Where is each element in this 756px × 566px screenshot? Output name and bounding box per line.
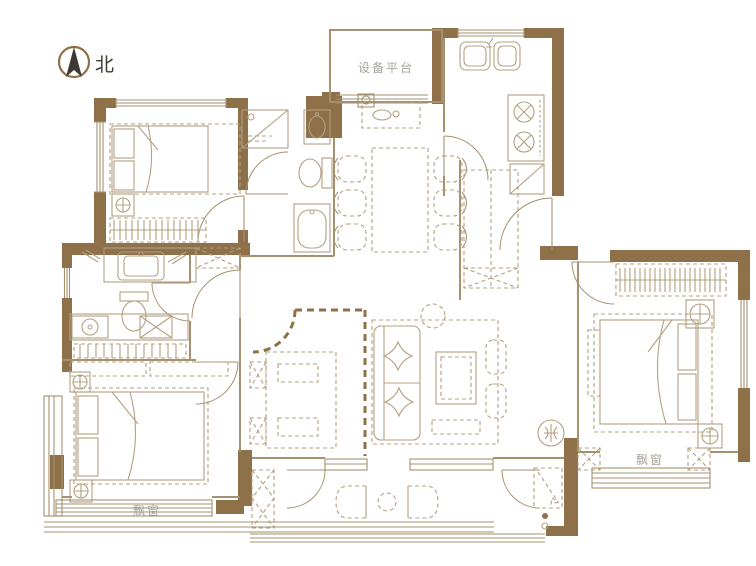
bed-north-icon xyxy=(112,126,208,192)
towel-radiator-icon xyxy=(74,344,186,358)
drain-dot-icon xyxy=(542,513,548,519)
room-flex xyxy=(250,310,365,456)
vanity-sink-icon xyxy=(294,204,330,252)
toilet-second-icon xyxy=(120,292,148,331)
room-bedroom-southwest xyxy=(70,362,228,502)
flex-side-unit-top-icon xyxy=(250,362,266,388)
bedside-table-master-icon xyxy=(698,424,722,448)
door-entry xyxy=(500,198,552,250)
gas-stove-icon xyxy=(508,95,544,161)
flex-cushion xyxy=(278,418,318,436)
wardrobe-north-icon xyxy=(110,218,206,242)
balcony-table-icon xyxy=(378,493,396,511)
balcony-sliding-window xyxy=(325,459,493,470)
door-bath-second xyxy=(152,283,190,321)
balcony-storage-left-icon xyxy=(252,470,274,528)
dining-chair-icon xyxy=(338,156,366,182)
door-bedroom-north xyxy=(198,196,244,242)
dining-chair-icon xyxy=(434,156,462,182)
dining-chairs xyxy=(334,156,467,250)
bay-window-southeast: 飘窗 xyxy=(578,448,710,488)
room-bath-second xyxy=(70,248,196,358)
doors xyxy=(152,136,614,508)
dining-chair-icon xyxy=(338,190,366,216)
bedside-lamp-sw-bottom-icon xyxy=(70,480,92,502)
sofa-pillow-icon xyxy=(384,342,412,370)
dining-chair-icon xyxy=(434,190,462,216)
window-kitchen-top xyxy=(458,28,524,38)
wardrobe-master-icon xyxy=(616,264,726,296)
room-dining xyxy=(334,102,467,252)
shower-icon xyxy=(242,110,288,148)
window-bath-second-left xyxy=(62,268,72,298)
room-master-bedroom xyxy=(588,264,726,448)
door-bath-main xyxy=(246,152,288,194)
bedside-lamp-sw-top-icon xyxy=(70,372,90,392)
living-rug-outline xyxy=(372,320,498,444)
toilet-main-icon xyxy=(299,158,332,188)
laundry-counter-icon xyxy=(70,314,188,340)
bedside-lamp-north-icon xyxy=(112,194,134,216)
window-bedroom-north-top xyxy=(116,98,226,108)
door-balcony-left xyxy=(287,470,325,508)
sofa-pillow-icon xyxy=(385,388,413,416)
flex-partition-outline xyxy=(295,310,365,456)
double-sink-icon xyxy=(460,38,520,70)
floor-plan-page: 北 xyxy=(0,0,756,566)
flex-cushion xyxy=(278,364,318,382)
dining-table-icon xyxy=(372,148,428,252)
corner-cabinet-icon xyxy=(510,164,544,194)
utility-closet-icon xyxy=(534,468,562,529)
flex-daybed-icon xyxy=(266,352,336,448)
windows xyxy=(62,28,750,388)
coffee-table-icon xyxy=(436,352,476,404)
north-arrow-icon xyxy=(66,47,82,77)
plant-round-icon xyxy=(421,304,445,328)
room-living xyxy=(372,304,564,446)
bed-rug-outline xyxy=(110,124,240,194)
door-hall-to-living xyxy=(192,270,240,318)
floor-plan: 北 xyxy=(0,0,756,566)
sideboard-icon xyxy=(362,102,420,128)
equipment-platform-label: 设备平台 xyxy=(358,60,414,75)
room-bedroom-north xyxy=(110,124,240,242)
tv-console-icon xyxy=(432,420,480,434)
door-bedroom-southwest xyxy=(196,362,238,404)
corner-plant-icon xyxy=(538,420,564,446)
side-table-icon xyxy=(486,340,506,374)
bay-window-sw-label: 飘窗 xyxy=(133,504,161,518)
cabinet-sw-left xyxy=(70,362,146,376)
north-compass: 北 xyxy=(59,47,114,77)
north-label: 北 xyxy=(95,54,114,76)
balcony-railing xyxy=(250,534,545,542)
cabinet-sw-right xyxy=(150,362,228,376)
window-bedroom-north-left xyxy=(94,122,106,192)
bed-southwest-icon xyxy=(76,392,204,480)
bed-rug-outline-sw xyxy=(74,388,208,484)
bay-window-se-label: 飘窗 xyxy=(636,453,664,467)
room-balcony xyxy=(250,459,562,542)
bed-rug-outline-master xyxy=(594,314,712,432)
dining-chair-icon xyxy=(434,224,462,250)
room-kitchen xyxy=(460,38,544,194)
bed-master-icon xyxy=(600,320,698,424)
bay-cabinet-right-icon xyxy=(688,448,710,470)
flex-side-unit-bottom-icon xyxy=(250,418,266,444)
balcony-chair-right-icon xyxy=(408,486,438,518)
dining-chair-icon xyxy=(338,224,366,250)
room-equipment-platform: 设备平台 xyxy=(358,60,414,107)
balcony-chair-left-icon xyxy=(336,486,366,518)
side-table-icon xyxy=(486,384,506,418)
window-master-right xyxy=(738,300,750,388)
flex-door-arc xyxy=(253,310,295,352)
